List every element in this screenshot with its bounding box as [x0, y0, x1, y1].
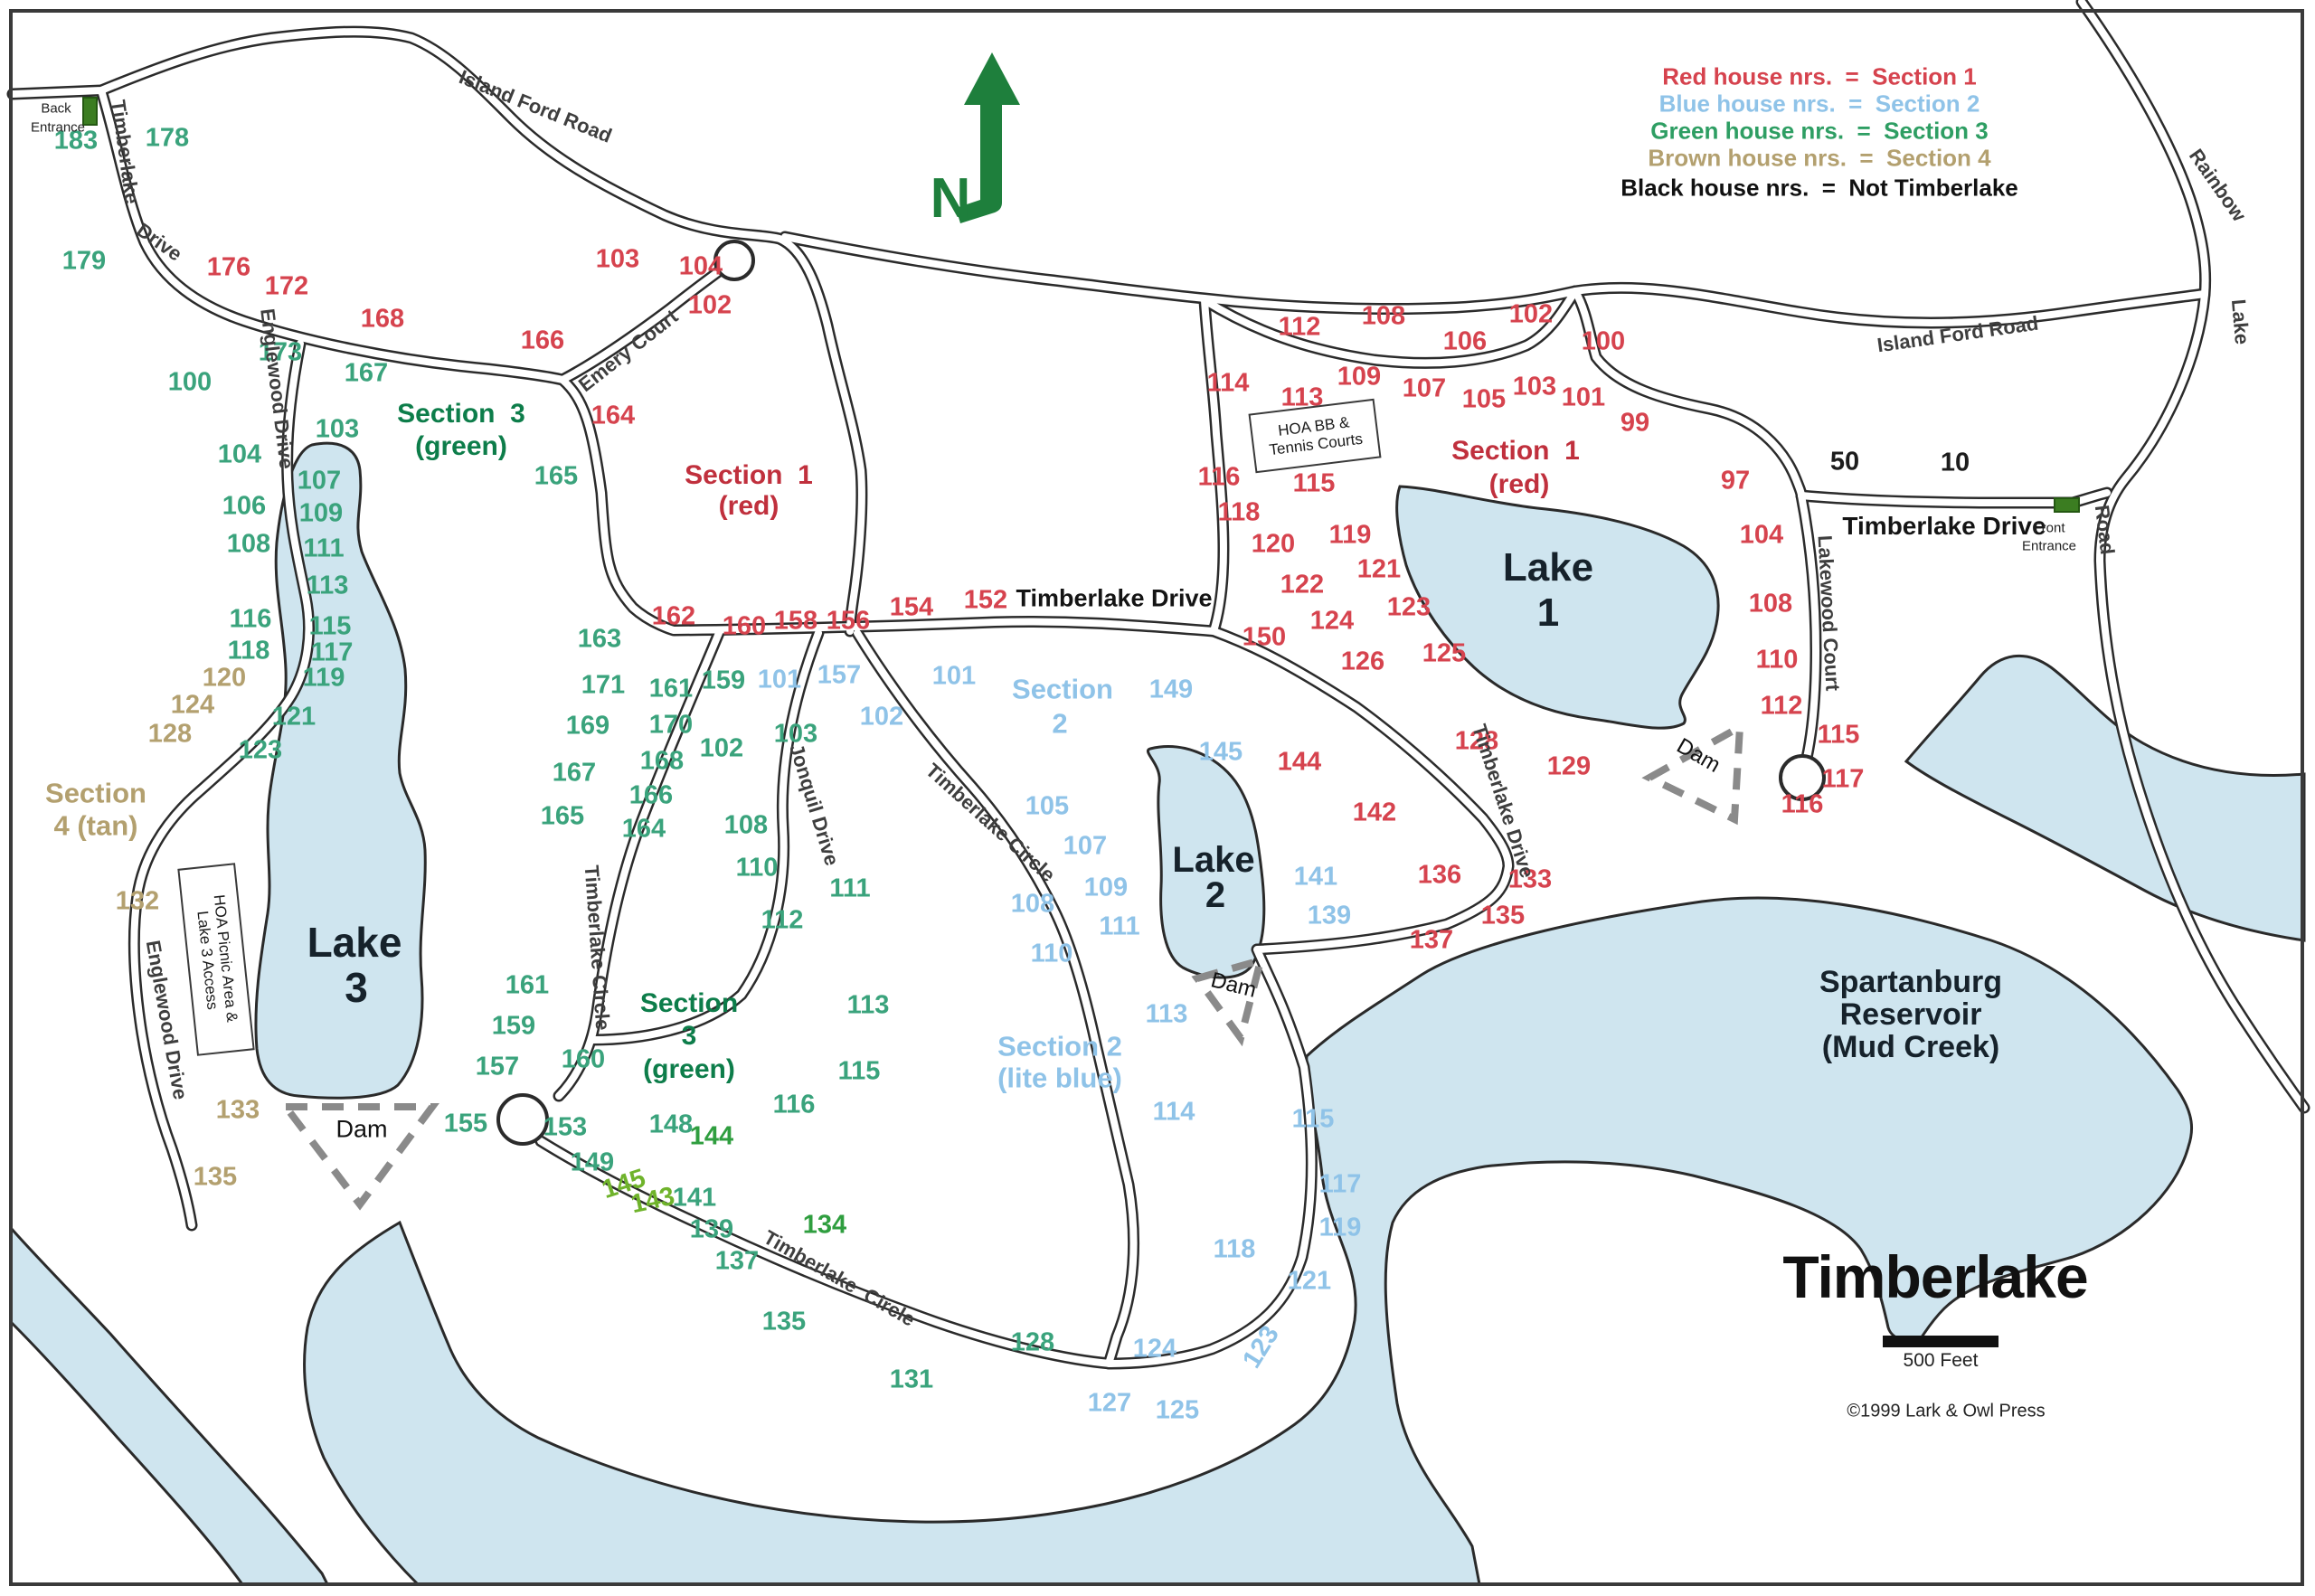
house-number: 116	[773, 1092, 816, 1119]
house-number: 161	[506, 973, 549, 999]
house-number: 148	[649, 1112, 693, 1138]
house-number: 123	[1387, 595, 1431, 621]
house-number: 124	[1310, 609, 1354, 635]
house-number: 102	[700, 736, 743, 762]
house-number: 104	[218, 442, 261, 468]
legend-item: Blue house nrs. = Section 2	[1659, 90, 1980, 118]
section-label: Section 2	[997, 1033, 1122, 1061]
house-number: 129	[1547, 754, 1591, 780]
house-number: 121	[272, 704, 316, 731]
house-number: 137	[1410, 928, 1453, 954]
house-number: 114	[1207, 371, 1250, 397]
house-number: 117	[311, 640, 354, 666]
house-number: 100	[1582, 329, 1625, 355]
house-number: 107	[1063, 834, 1107, 860]
house-number: 160	[723, 614, 766, 640]
house-number: 123	[239, 738, 282, 764]
house-number: 127	[1088, 1391, 1131, 1417]
road-label: Lakewood Court	[1815, 534, 1843, 691]
lake-label: (Mud Creek)	[1822, 1032, 1999, 1062]
house-number: 102	[860, 704, 903, 731]
section-label: (green)	[415, 433, 507, 460]
house-number: 103	[596, 247, 639, 273]
road-label: Rainbow	[2186, 146, 2250, 225]
house-number: 109	[1084, 875, 1128, 902]
legend-item: Red house nrs. = Section 1	[1662, 63, 1976, 91]
house-number: 135	[194, 1165, 237, 1191]
scale-label: 500 Feet	[1904, 1350, 1979, 1372]
house-number: 155	[444, 1111, 487, 1138]
road-label: Timberlake Circle	[581, 864, 613, 1031]
house-number: 111	[303, 536, 344, 562]
lake-label: Lake	[1503, 548, 1593, 588]
house-number: 125	[1156, 1398, 1199, 1424]
timberlake-community-map: N 18317817917316710010310410710610910811…	[0, 0, 2315, 1596]
lake-label: 2	[1205, 877, 1225, 913]
road-label: Timberlake	[108, 99, 142, 205]
house-number: 118	[1218, 500, 1261, 526]
section-label: 4 (tan)	[54, 812, 138, 840]
house-number: 108	[724, 813, 768, 839]
lake-label: 1	[1537, 593, 1559, 633]
entrance-label: Back	[41, 102, 71, 116]
road-label: Timberlake Drive	[1842, 514, 2046, 539]
house-number: 152	[964, 588, 1007, 614]
road-label: Drive	[133, 220, 185, 265]
house-number: 141	[1294, 864, 1337, 891]
house-number: 116	[1198, 465, 1241, 491]
house-number: 109	[1337, 364, 1381, 391]
lake-label: 3	[345, 967, 368, 1008]
house-number: 133	[216, 1098, 260, 1124]
house-number: 142	[1353, 800, 1396, 826]
house-number: 105	[1462, 387, 1506, 413]
house-number: 99	[1620, 411, 1649, 437]
house-number: 119	[303, 666, 345, 692]
house-number: 134	[803, 1213, 846, 1239]
house-number: 108	[227, 532, 270, 558]
house-number: 144	[690, 1124, 733, 1150]
house-number: 50	[1830, 449, 1859, 476]
house-number: 124	[1133, 1336, 1176, 1363]
house-number: 137	[715, 1249, 759, 1275]
house-number: 143	[628, 1184, 676, 1218]
section-label: Section 1	[685, 462, 813, 489]
house-number: 111	[1099, 914, 1139, 940]
house-number: 115	[1293, 471, 1336, 497]
house-number: 107	[298, 468, 341, 495]
house-number: 162	[652, 604, 695, 630]
house-number: 116	[1781, 792, 1824, 818]
house-number: 167	[553, 760, 596, 787]
road-label: Timberlake Circle	[922, 760, 1059, 886]
facility-box: HOA BB &Tennis Courts	[1249, 399, 1382, 474]
facility-box: HOA Picnic Area &Lake 3 Access	[177, 863, 254, 1056]
entrance-label: Front	[2033, 522, 2065, 535]
section-label: (lite blue)	[997, 1064, 1122, 1092]
house-number: 124	[171, 693, 214, 719]
house-number: 168	[361, 307, 404, 333]
house-number: 157	[476, 1054, 519, 1081]
house-number: 112	[1761, 694, 1803, 720]
entrance-label: Entrance	[2022, 540, 2076, 553]
house-number: 125	[1422, 641, 1466, 667]
house-number: 128	[148, 722, 192, 748]
house-number: 119	[1329, 523, 1372, 549]
house-number: 165	[541, 804, 584, 830]
house-number: 103	[1513, 374, 1556, 401]
road-label: Englewood Drive	[257, 307, 297, 470]
house-number: 114	[1153, 1100, 1195, 1126]
section-label: 2	[1052, 710, 1067, 738]
house-number: 135	[762, 1309, 806, 1336]
house-number: 108	[1362, 304, 1405, 330]
section-label: (green)	[643, 1056, 735, 1083]
road-label: Timberlake Drive	[1469, 722, 1537, 880]
road-label: Lake	[2228, 298, 2252, 345]
house-number: 119	[1319, 1215, 1362, 1242]
house-number: 128	[1011, 1330, 1054, 1356]
house-number: 103	[316, 417, 359, 443]
house-number: 132	[116, 889, 159, 915]
house-number: 113	[1146, 1002, 1188, 1028]
house-number: 160	[562, 1047, 605, 1073]
house-number: 97	[1721, 468, 1750, 495]
house-number: 110	[1031, 941, 1073, 968]
house-number: 136	[1418, 863, 1461, 889]
house-number: 108	[1749, 591, 1792, 618]
house-number: 113	[847, 993, 890, 1019]
house-number: 10	[1941, 450, 1970, 477]
house-number: 141	[673, 1185, 716, 1212]
house-number: 169	[566, 713, 609, 740]
house-number: 117	[1319, 1172, 1362, 1198]
road-label: Jonquil Drive	[786, 741, 842, 868]
house-number: 179	[62, 249, 106, 275]
house-number: 115	[1818, 722, 1860, 749]
house-number: 172	[265, 274, 308, 300]
house-number: 159	[492, 1014, 535, 1040]
lake-label: Lake	[1172, 842, 1254, 878]
map-title: Timberlake	[1782, 1242, 2087, 1311]
road-label: Island Ford Road	[457, 67, 615, 146]
house-number: 113	[307, 573, 349, 600]
lake-label: Lake	[307, 921, 402, 963]
dam-label: Dam	[1209, 969, 1259, 1002]
house-number: 163	[578, 627, 621, 653]
house-number: 115	[838, 1059, 881, 1085]
house-number: 117	[1822, 767, 1865, 793]
house-number: 120	[203, 666, 246, 692]
entrance-label: Entrance	[31, 121, 85, 135]
house-number: 110	[1756, 647, 1799, 674]
house-number: 150	[1243, 625, 1286, 651]
house-number: 109	[299, 501, 343, 527]
house-number: 167	[345, 361, 388, 387]
house-number: 112	[761, 908, 804, 934]
house-number: 131	[890, 1367, 933, 1393]
house-number: 135	[1481, 903, 1525, 930]
section-label: 3	[682, 1023, 697, 1050]
house-number: 154	[890, 595, 933, 621]
house-number: 144	[1278, 750, 1321, 776]
section-label: (red)	[719, 493, 780, 520]
house-number: 157	[817, 663, 861, 689]
house-number: 149	[571, 1150, 614, 1176]
house-number: 121	[1357, 557, 1401, 583]
house-number: 104	[679, 254, 723, 280]
section-label: Section 1	[1451, 438, 1580, 465]
house-number: 166	[629, 783, 673, 809]
house-number: 110	[736, 855, 779, 882]
house-number: 111	[829, 876, 870, 902]
house-number: 118	[1214, 1237, 1256, 1263]
lake-label: Spartanburg	[1819, 967, 2002, 997]
road-label: Englewood Drive	[143, 939, 191, 1101]
house-number: 102	[688, 293, 732, 319]
section-label: Section 3	[397, 401, 525, 428]
house-number: 149	[1149, 677, 1193, 704]
house-number: 101	[1562, 385, 1605, 411]
house-number: 116	[230, 607, 272, 633]
road-label: Emery Court	[575, 307, 682, 396]
house-number: 168	[640, 749, 684, 775]
house-number: 122	[1280, 572, 1324, 599]
house-number: 158	[774, 609, 817, 635]
house-number: 120	[1252, 532, 1295, 558]
house-number: 159	[702, 668, 745, 694]
section-label: Section	[1012, 675, 1113, 704]
road-label: Timberlake Drive	[1016, 587, 1212, 611]
house-number: 115	[1292, 1107, 1335, 1133]
house-number: 165	[534, 464, 578, 490]
house-number: 118	[228, 638, 270, 665]
house-number: 104	[1740, 523, 1783, 549]
house-number: 178	[146, 126, 189, 152]
section-label: Section	[45, 779, 146, 807]
house-number: 170	[649, 713, 693, 739]
road-label: Island Ford Road	[1876, 314, 2039, 356]
house-number: 139	[1308, 903, 1351, 930]
house-number: 176	[207, 255, 250, 281]
house-number: 108	[1011, 892, 1054, 918]
house-number: 112	[1279, 315, 1321, 341]
copyright: ©1999 Lark & Owl Press	[1847, 1402, 2045, 1422]
house-number: 115	[309, 614, 352, 640]
house-number: 139	[690, 1217, 733, 1243]
section-label: (red)	[1489, 471, 1550, 498]
house-number: 145	[1199, 740, 1243, 766]
house-number: 166	[521, 328, 564, 354]
house-number: 153	[543, 1115, 587, 1141]
house-number: 101	[758, 667, 801, 694]
house-number: 105	[1025, 794, 1069, 820]
house-number: 161	[649, 676, 693, 703]
house-number: 164	[622, 817, 666, 843]
legend-item: Green house nrs. = Section 3	[1650, 118, 1989, 146]
house-number: 106	[1443, 329, 1487, 355]
house-number: 171	[581, 673, 625, 699]
house-number: 121	[1288, 1269, 1331, 1295]
dam-label: Dam	[1673, 735, 1724, 777]
house-number: 107	[1403, 376, 1446, 402]
house-number: 101	[932, 664, 976, 690]
house-number: 106	[222, 494, 266, 520]
section-label: Section	[640, 990, 738, 1017]
house-number: 100	[168, 370, 212, 396]
house-number: 156	[827, 609, 870, 635]
legend-item: Black house nrs. = Not Timberlake	[1620, 175, 2018, 203]
lake-label: Reservoir	[1840, 999, 1982, 1030]
house-number: 102	[1509, 302, 1553, 328]
road-label: Road	[2092, 504, 2118, 555]
legend-item: Brown house nrs. = Section 4	[1648, 145, 1990, 173]
house-number: 126	[1341, 649, 1384, 675]
house-number: 123	[1239, 1322, 1284, 1373]
dam-label: Dam	[335, 1118, 387, 1142]
house-number: 164	[591, 403, 635, 430]
